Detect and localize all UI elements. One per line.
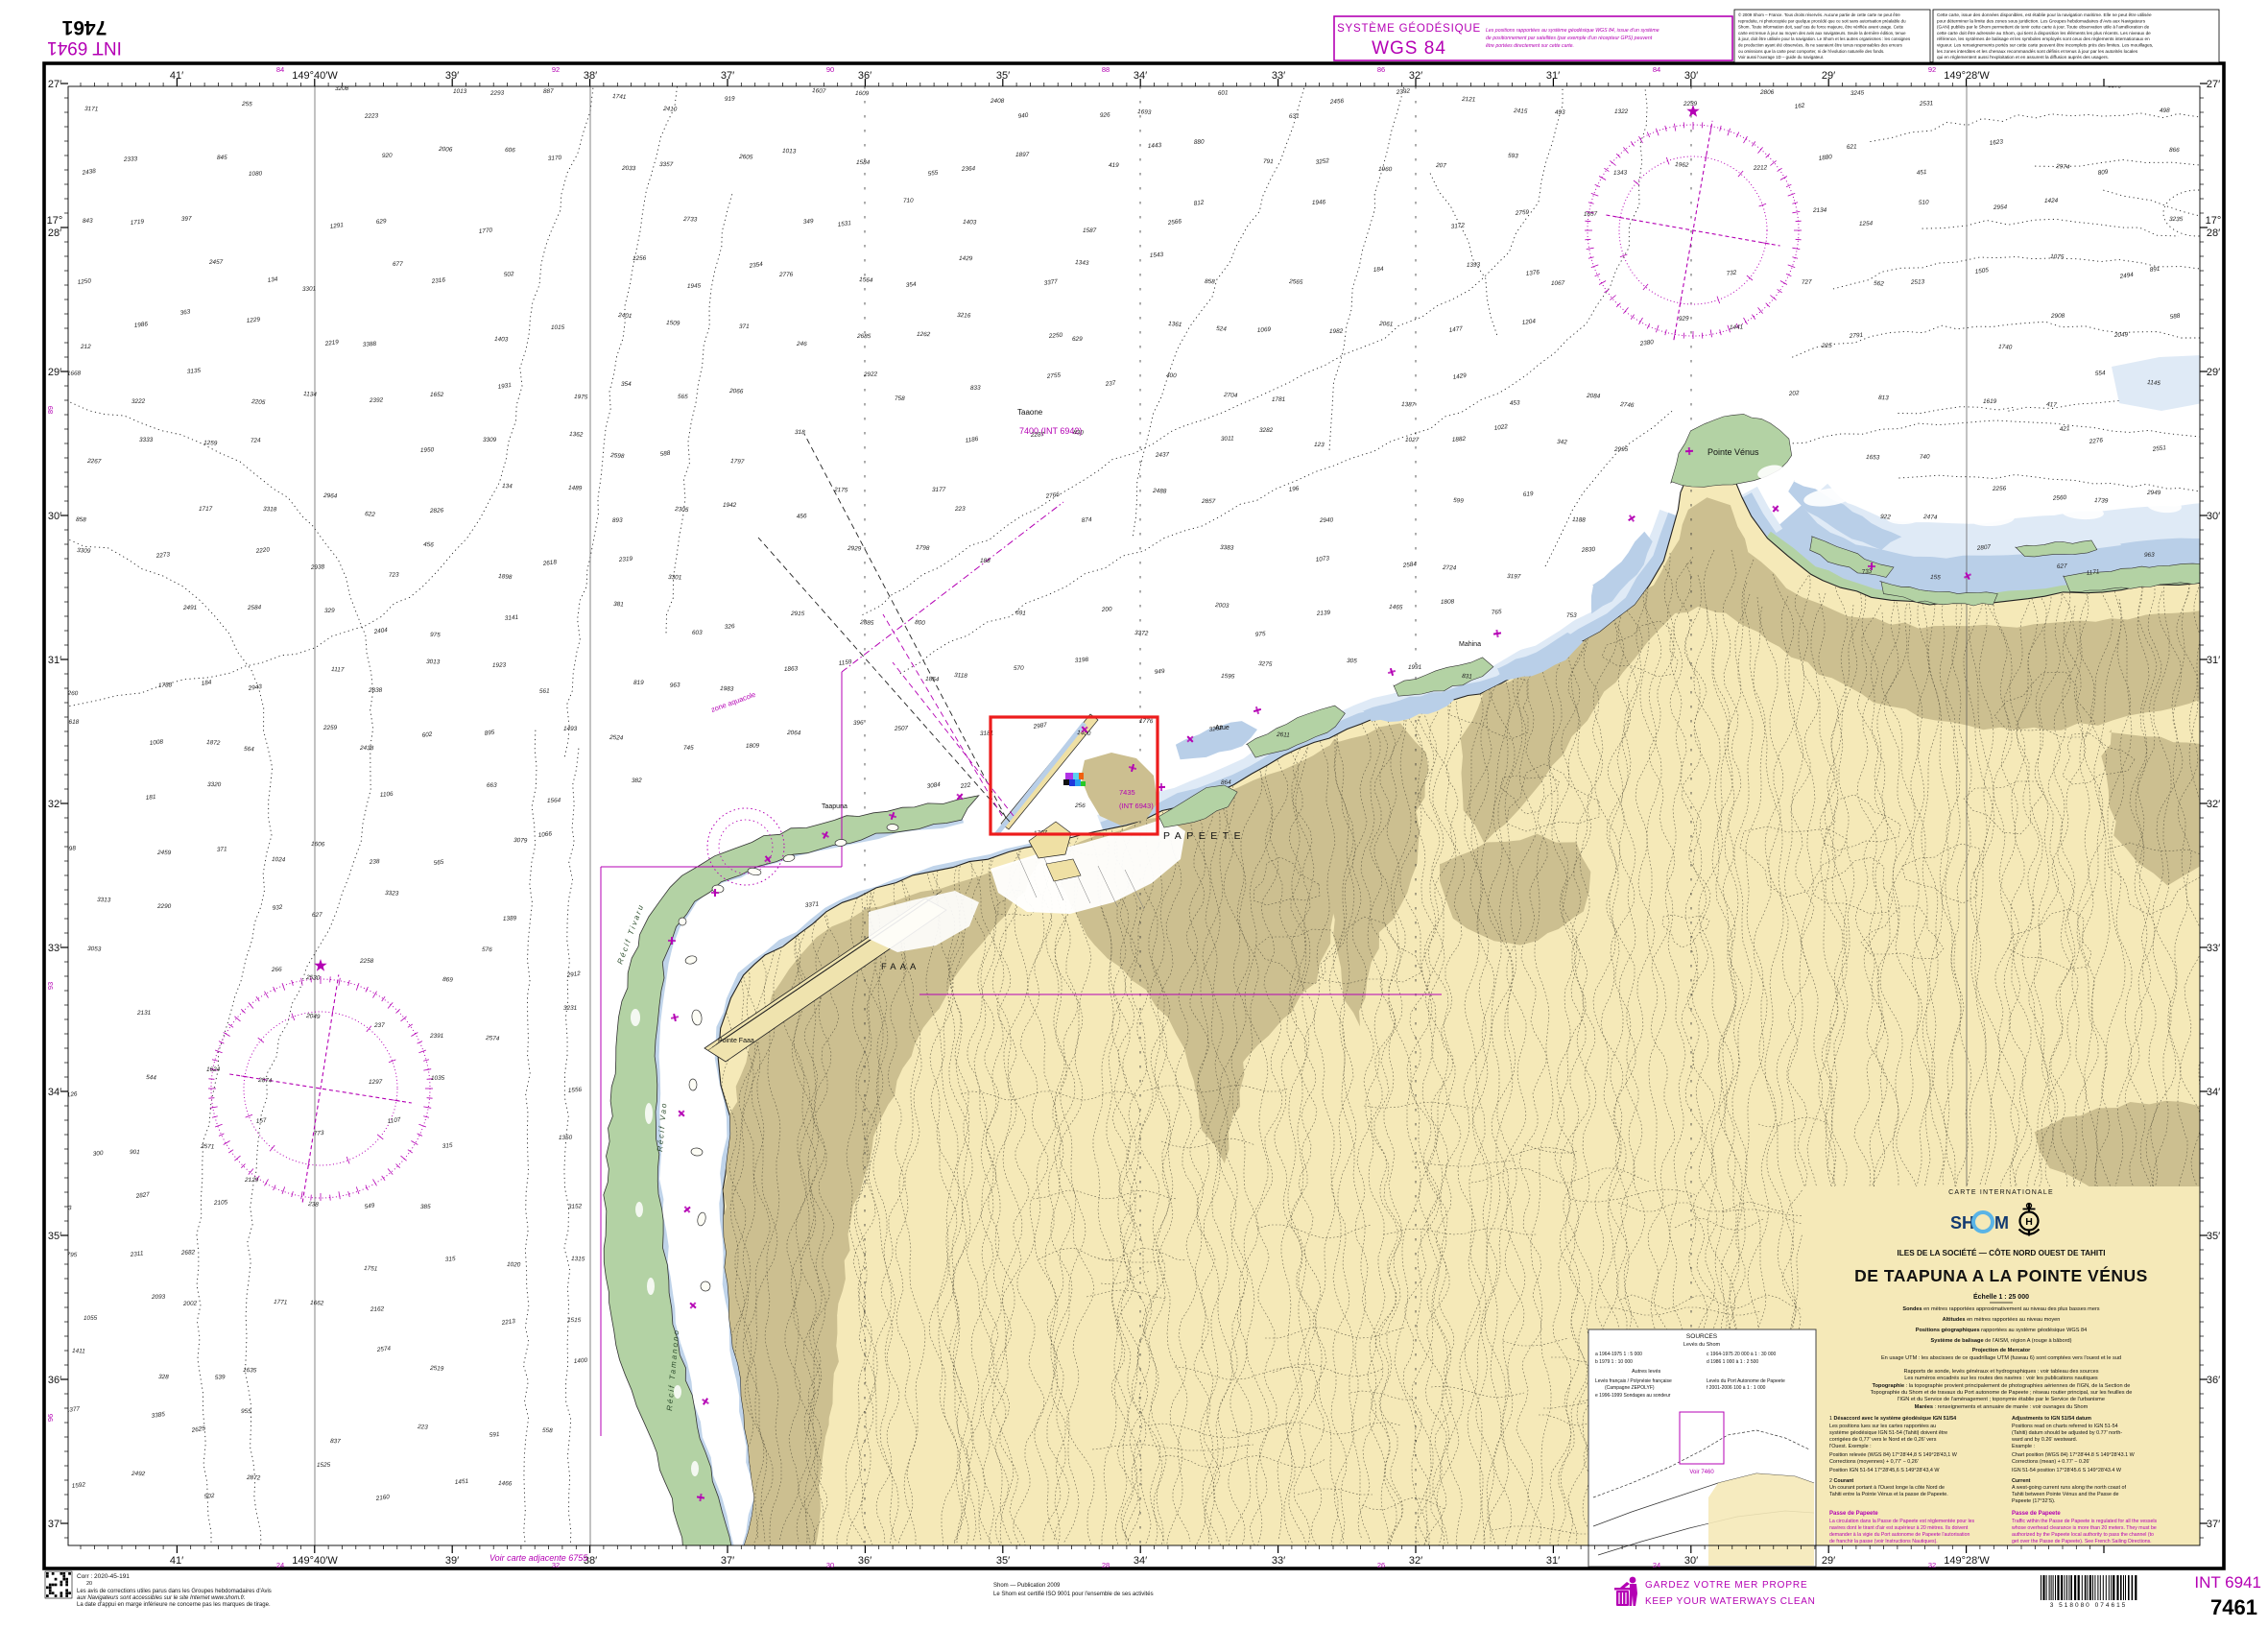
svg-text:32′: 32′ bbox=[48, 799, 61, 810]
svg-text:2006: 2006 bbox=[438, 146, 453, 154]
svg-text:1584: 1584 bbox=[856, 159, 871, 166]
svg-text:2915: 2915 bbox=[790, 610, 805, 617]
svg-text:de franchir la passe (voir Ins: de franchir la passe (voir Instructions … bbox=[1829, 1539, 1938, 1544]
svg-text:2474: 2474 bbox=[1922, 514, 1938, 521]
svg-text:562: 562 bbox=[1874, 280, 1884, 288]
svg-text:1983: 1983 bbox=[720, 685, 734, 693]
svg-text:1991: 1991 bbox=[1408, 664, 1422, 671]
svg-text:591: 591 bbox=[489, 1431, 500, 1439]
svg-text:Les avis de corrections utiles: Les avis de corrections utiles parus dan… bbox=[77, 1589, 272, 1594]
svg-text:7435: 7435 bbox=[1119, 788, 1135, 797]
svg-text:88: 88 bbox=[1102, 65, 1110, 74]
svg-text:2064: 2064 bbox=[786, 730, 801, 737]
svg-text:1297: 1297 bbox=[369, 1079, 383, 1086]
svg-text:400: 400 bbox=[1166, 372, 1177, 379]
svg-text:2746: 2746 bbox=[1619, 401, 1635, 409]
svg-text:2574: 2574 bbox=[485, 1035, 500, 1042]
svg-text:223: 223 bbox=[417, 1424, 429, 1431]
svg-text:2571: 2571 bbox=[200, 1143, 215, 1151]
svg-text:381: 381 bbox=[613, 601, 624, 609]
svg-text:1609: 1609 bbox=[855, 90, 870, 97]
svg-text:919: 919 bbox=[725, 95, 735, 103]
svg-text:149°40′W: 149°40′W bbox=[292, 1555, 338, 1567]
svg-text:134: 134 bbox=[502, 483, 513, 490]
svg-text:2061: 2061 bbox=[1378, 321, 1394, 328]
svg-text:1515: 1515 bbox=[567, 1317, 582, 1324]
svg-text:599: 599 bbox=[1453, 497, 1465, 505]
svg-text:1080: 1080 bbox=[249, 170, 263, 178]
svg-text:354: 354 bbox=[621, 381, 632, 388]
svg-text:2438: 2438 bbox=[359, 745, 374, 752]
svg-text:2491: 2491 bbox=[182, 605, 198, 611]
svg-text:Tahiti entre la Pointe Vénus e: Tahiti entre la Pointe Vénus et la passe… bbox=[1829, 1492, 1948, 1497]
svg-text:3320: 3320 bbox=[207, 781, 222, 788]
svg-text:2524: 2524 bbox=[609, 734, 624, 742]
svg-text:453: 453 bbox=[1510, 399, 1521, 407]
svg-text:329: 329 bbox=[324, 608, 335, 614]
svg-text:2806: 2806 bbox=[1759, 89, 1775, 96]
svg-text:En usage UTM : les abscisses d: En usage UTM : les abscisses de ce quadr… bbox=[1881, 1355, 2121, 1361]
svg-text:37′: 37′ bbox=[721, 1555, 734, 1567]
svg-text:ILES DE LA SOCIÉTÉ — CÔTE NORD: ILES DE LA SOCIÉTÉ — CÔTE NORD OUEST DE … bbox=[1898, 1247, 2106, 1257]
svg-text:Pointe Faaa: Pointe Faaa bbox=[718, 1038, 754, 1044]
svg-text:3388: 3388 bbox=[363, 341, 377, 348]
svg-text:561: 561 bbox=[539, 688, 550, 695]
svg-text:200: 200 bbox=[1101, 606, 1113, 613]
svg-text:1946: 1946 bbox=[1312, 199, 1326, 206]
svg-text:33′: 33′ bbox=[48, 943, 61, 954]
svg-text:238: 238 bbox=[307, 1201, 320, 1209]
svg-text:Levés français / Polynésie fra: Levés français / Polynésie française bbox=[1595, 1378, 1672, 1384]
svg-text:1751: 1751 bbox=[364, 1265, 378, 1273]
svg-text:3313: 3313 bbox=[97, 897, 111, 904]
svg-text:2139: 2139 bbox=[1316, 610, 1331, 617]
svg-text:2733: 2733 bbox=[682, 216, 698, 224]
svg-text:800: 800 bbox=[915, 619, 926, 627]
svg-text:Rapports de sonde, levés génér: Rapports de sonde, levés généraux et hyd… bbox=[1903, 1369, 2098, 1375]
svg-text:1717: 1717 bbox=[199, 506, 213, 513]
svg-text:© 2009 Shom – France. Tous dro: © 2009 Shom – France. Tous droits réserv… bbox=[1738, 12, 1900, 17]
svg-text:305: 305 bbox=[1347, 658, 1357, 665]
svg-text:aux Navigateurs sont accessibl: aux Navigateurs sont accessibles sur le … bbox=[77, 1595, 246, 1601]
svg-text:36′: 36′ bbox=[858, 1555, 871, 1567]
svg-text:593: 593 bbox=[1508, 153, 1518, 159]
svg-text:33′: 33′ bbox=[1272, 1555, 1285, 1567]
svg-text:2995: 2995 bbox=[1613, 446, 1629, 453]
svg-text:1343: 1343 bbox=[1075, 259, 1089, 267]
svg-text:Position relevée (WGS 84) 1: Position relevée (WGS 84) 17°28′44,8 S 1… bbox=[1829, 1452, 1958, 1458]
svg-text:31′: 31′ bbox=[1546, 70, 1560, 82]
svg-text:1015: 1015 bbox=[551, 324, 565, 331]
svg-text:2392: 2392 bbox=[369, 396, 384, 404]
svg-text:371: 371 bbox=[217, 846, 228, 853]
svg-text:866: 866 bbox=[2169, 147, 2180, 154]
svg-text:1489: 1489 bbox=[568, 485, 583, 492]
svg-text:30′: 30′ bbox=[1684, 70, 1698, 82]
svg-text:2531: 2531 bbox=[1919, 100, 1934, 108]
svg-text:Pointe Vénus: Pointe Vénus bbox=[1707, 447, 1759, 457]
svg-text:3198: 3198 bbox=[1075, 657, 1089, 664]
svg-text:922: 922 bbox=[1880, 514, 1891, 521]
svg-text:2267: 2267 bbox=[86, 458, 102, 466]
svg-text:237: 237 bbox=[373, 1022, 385, 1029]
svg-text:reproduite, ni photocopiée par: reproduite, ni photocopiée par quelque p… bbox=[1738, 18, 1906, 23]
svg-text:31′: 31′ bbox=[2207, 655, 2220, 666]
svg-text:565: 565 bbox=[678, 394, 688, 400]
svg-text:2093: 2093 bbox=[151, 1294, 166, 1301]
svg-text:3231: 3231 bbox=[563, 1005, 578, 1012]
svg-text:3053: 3053 bbox=[87, 946, 102, 953]
svg-text:24: 24 bbox=[1653, 1561, 1660, 1569]
svg-text:1635: 1635 bbox=[243, 1367, 257, 1375]
svg-text:1343: 1343 bbox=[1613, 169, 1628, 177]
svg-text:3309: 3309 bbox=[77, 547, 91, 555]
svg-text:819: 819 bbox=[633, 680, 644, 686]
svg-text:29′: 29′ bbox=[1822, 70, 1835, 82]
svg-text:2256: 2256 bbox=[1992, 485, 2007, 492]
svg-text:1624: 1624 bbox=[206, 1066, 221, 1073]
svg-text:1134: 1134 bbox=[303, 391, 318, 398]
svg-text:93: 93 bbox=[46, 982, 55, 990]
svg-text:Corrections (moyennes): Corrections (moyennes) + 0,77′ − 0,26′ bbox=[1829, 1459, 1919, 1465]
svg-text:1606: 1606 bbox=[311, 841, 325, 849]
svg-text:1035: 1035 bbox=[431, 1075, 445, 1082]
svg-text:3216: 3216 bbox=[957, 312, 971, 320]
svg-text:710: 710 bbox=[903, 198, 914, 204]
svg-text:1443: 1443 bbox=[1148, 142, 1162, 150]
svg-text:891: 891 bbox=[2149, 266, 2161, 274]
svg-text:603: 603 bbox=[692, 630, 703, 636]
svg-text:1465: 1465 bbox=[1389, 604, 1403, 611]
svg-text:809: 809 bbox=[2097, 169, 2109, 177]
svg-text:ou omissions que la carte peut: ou omissions que la carte peut comporter… bbox=[1738, 49, 1884, 54]
svg-text:27′: 27′ bbox=[2207, 79, 2220, 90]
svg-text:2121: 2121 bbox=[1461, 96, 1476, 104]
svg-text:2287: 2287 bbox=[1030, 431, 1045, 439]
svg-text:202: 202 bbox=[1788, 390, 1801, 397]
svg-text:1362: 1362 bbox=[569, 431, 584, 439]
svg-text:41′: 41′ bbox=[170, 70, 183, 82]
svg-text:1067: 1067 bbox=[1551, 280, 1565, 287]
svg-text:419: 419 bbox=[1109, 162, 1119, 169]
svg-text:89: 89 bbox=[46, 406, 55, 414]
svg-text:315: 315 bbox=[442, 1142, 453, 1150]
svg-text:858: 858 bbox=[76, 516, 86, 523]
svg-text:417: 417 bbox=[2046, 401, 2058, 409]
svg-text:887: 887 bbox=[543, 88, 554, 95]
svg-text:724: 724 bbox=[251, 437, 261, 444]
svg-text:3245: 3245 bbox=[1850, 89, 1865, 97]
svg-text:1668: 1668 bbox=[67, 370, 82, 377]
svg-text:36′: 36′ bbox=[2207, 1375, 2220, 1386]
svg-text:32′: 32′ bbox=[1409, 70, 1422, 82]
svg-text:2974: 2974 bbox=[2055, 163, 2070, 171]
svg-text:get over the Passe de Papeete): get over the Passe de Papeete). See Fren… bbox=[2012, 1539, 2152, 1544]
svg-text:2212: 2212 bbox=[1753, 164, 1768, 172]
svg-text:1950: 1950 bbox=[420, 446, 435, 454]
svg-text:Example :: Example : bbox=[2012, 1444, 2035, 1449]
svg-text:1564: 1564 bbox=[859, 276, 873, 284]
svg-text:149°40′W: 149°40′W bbox=[292, 70, 338, 82]
svg-text:342: 342 bbox=[1557, 439, 1567, 445]
svg-text:Positions read on charts refer: Positions read on charts referred to IGN… bbox=[2012, 1424, 2118, 1429]
svg-text:3235: 3235 bbox=[2169, 216, 2184, 223]
svg-text:940: 940 bbox=[1017, 112, 1029, 120]
svg-text:2759: 2759 bbox=[1515, 209, 1530, 217]
svg-text:Taapuna: Taapuna bbox=[822, 803, 848, 810]
svg-text:2922: 2922 bbox=[863, 371, 878, 378]
svg-text:1587: 1587 bbox=[1083, 227, 1097, 234]
svg-text:188: 188 bbox=[980, 558, 991, 564]
svg-text:37′: 37′ bbox=[2207, 1519, 2220, 1530]
svg-text:2364: 2364 bbox=[961, 165, 976, 173]
svg-text:831: 831 bbox=[1462, 673, 1473, 681]
svg-text:1982: 1982 bbox=[1329, 328, 1344, 335]
svg-text:1882: 1882 bbox=[1452, 436, 1467, 443]
svg-text:31′: 31′ bbox=[1546, 1555, 1560, 1567]
svg-text:Altitudes en mètres rapportées: Altitudes en mètres rapportées au niveau… bbox=[1943, 1317, 2061, 1323]
svg-text:1739: 1739 bbox=[2094, 497, 2109, 505]
svg-text:de positionnement par satellit: de positionnement par satellites (par ex… bbox=[1486, 36, 1653, 41]
svg-text:975: 975 bbox=[430, 632, 441, 638]
svg-text:456: 456 bbox=[797, 513, 808, 520]
svg-text:f 2001-2006 100 à 1 :: f 2001-2006 100 à 1 : 1 000 bbox=[1707, 1385, 1766, 1391]
svg-text:41′: 41′ bbox=[170, 1555, 183, 1567]
svg-text:A west-going current runs alon: A west-going current runs along the nort… bbox=[2012, 1485, 2126, 1491]
svg-text:1776: 1776 bbox=[1139, 718, 1154, 725]
svg-text:vigueur. Les renseignements po: vigueur. Les renseignements portés sur c… bbox=[1937, 43, 2153, 48]
svg-text:2519: 2519 bbox=[429, 1365, 444, 1373]
svg-text:29′: 29′ bbox=[2207, 367, 2220, 378]
svg-text:1403: 1403 bbox=[963, 219, 977, 227]
svg-text:2598: 2598 bbox=[609, 452, 625, 460]
svg-text:1020: 1020 bbox=[507, 1261, 521, 1269]
svg-text:1872: 1872 bbox=[206, 739, 221, 747]
svg-text:354: 354 bbox=[905, 281, 917, 289]
svg-text:Sondes en mètres rapportées ap: Sondes en mètres rapportées approximativ… bbox=[1902, 1306, 2099, 1312]
svg-text:149°28′W: 149°28′W bbox=[1944, 1555, 1990, 1567]
svg-text:2457: 2457 bbox=[208, 259, 224, 266]
svg-text:740: 740 bbox=[1920, 453, 1930, 461]
svg-text:2258: 2258 bbox=[359, 958, 374, 965]
svg-text:3170: 3170 bbox=[548, 155, 562, 162]
svg-text:Les positions lues sur les car: Les positions lues sur les cartes rappor… bbox=[1829, 1424, 1936, 1429]
svg-text:corrigées de 0,77′ vers le Nor: corrigées de 0,77′ vers le Nord et de 0,… bbox=[1829, 1437, 1937, 1443]
svg-text:3197: 3197 bbox=[1507, 573, 1521, 581]
svg-text:880: 880 bbox=[1194, 138, 1205, 146]
svg-text:IGN 51-54 position: IGN 51-54 position 17°28′45.6 S 149°28′4… bbox=[2012, 1468, 2122, 1473]
svg-text:929: 929 bbox=[1679, 315, 1689, 323]
svg-text:Corrections (mean): Corrections (mean) + 0.77′ − 0.26′ bbox=[2012, 1459, 2089, 1465]
svg-text:864: 864 bbox=[1221, 779, 1231, 786]
svg-text:315: 315 bbox=[445, 1256, 457, 1263]
svg-text:451: 451 bbox=[1916, 169, 1927, 177]
svg-text:INT 6941: INT 6941 bbox=[47, 37, 122, 58]
svg-text:1 Désaccord avec le système: 1 Désaccord avec le système géodésique I… bbox=[1829, 1416, 1956, 1422]
svg-text:396: 396 bbox=[853, 720, 864, 727]
svg-text:1657: 1657 bbox=[1584, 210, 1598, 218]
svg-text:27′: 27′ bbox=[48, 79, 61, 90]
svg-text:606: 606 bbox=[505, 147, 515, 154]
svg-text:Taaone: Taaone bbox=[1017, 408, 1043, 417]
svg-text:2954: 2954 bbox=[1993, 203, 2008, 211]
svg-text:149°28′W: 149°28′W bbox=[1944, 70, 1990, 82]
svg-text:318: 318 bbox=[795, 429, 805, 436]
svg-text:2319: 2319 bbox=[618, 556, 633, 563]
svg-text:1897: 1897 bbox=[1015, 152, 1030, 158]
svg-text:2002: 2002 bbox=[182, 1300, 198, 1307]
svg-text:1942: 1942 bbox=[723, 502, 737, 509]
svg-text:qui en réglementent aussi l'ex: qui en réglementent aussi l'exploitation… bbox=[1937, 55, 2109, 60]
svg-text:1055: 1055 bbox=[84, 1315, 98, 1322]
svg-text:2682: 2682 bbox=[180, 1249, 196, 1257]
svg-text:28: 28 bbox=[1102, 1561, 1110, 1569]
svg-text:3 518080 074615: 3 518080 074615 bbox=[2050, 1602, 2128, 1609]
svg-text:1543: 1543 bbox=[1150, 251, 1164, 259]
svg-text:Passe de Papeete: Passe de Papeete bbox=[1829, 1511, 1878, 1517]
svg-text:90: 90 bbox=[826, 65, 834, 74]
svg-text:627: 627 bbox=[2057, 563, 2067, 570]
svg-text:demander à la vigie du Port au: demander à la vigie du Port autonome de … bbox=[1829, 1532, 1970, 1538]
svg-text:1595: 1595 bbox=[1221, 673, 1235, 681]
svg-text:858: 858 bbox=[1205, 278, 1215, 285]
svg-text:1509: 1509 bbox=[666, 320, 680, 327]
svg-text:SOURCES: SOURCES bbox=[1686, 1333, 1718, 1340]
svg-text:29′: 29′ bbox=[48, 367, 61, 378]
svg-text:30′: 30′ bbox=[48, 511, 61, 522]
svg-text:1441: 1441 bbox=[1730, 323, 1744, 331]
svg-text:à jour, doit être utilisée pou: à jour, doit être utilisée pour la navig… bbox=[1738, 36, 1911, 41]
svg-text:1619: 1619 bbox=[1983, 398, 1997, 405]
svg-text:36′: 36′ bbox=[858, 70, 871, 82]
svg-text:328: 328 bbox=[158, 1374, 169, 1380]
svg-text:Projection de Mercator: Projection de Mercator bbox=[1972, 1348, 2031, 1353]
svg-text:28′: 28′ bbox=[2207, 227, 2220, 239]
svg-text:1525: 1525 bbox=[317, 1462, 331, 1469]
svg-text:Les positions rapportées au sy: Les positions rapportées au système géod… bbox=[1486, 28, 1659, 34]
svg-text:2908: 2908 bbox=[2050, 313, 2065, 320]
svg-text:949: 949 bbox=[1154, 668, 1165, 676]
svg-text:2 Courant: 2 Courant bbox=[1829, 1478, 1853, 1484]
svg-text:588: 588 bbox=[659, 450, 671, 458]
svg-text:1741: 1741 bbox=[612, 93, 627, 101]
svg-text:Levés du Shom: Levés du Shom bbox=[1683, 1342, 1721, 1348]
svg-text:authorized by the Papeete loca: authorized by the Papeete local authorit… bbox=[2012, 1532, 2154, 1538]
svg-text:225: 225 bbox=[1821, 343, 1832, 349]
svg-text:20: 20 bbox=[86, 1581, 92, 1587]
svg-text:1854: 1854 bbox=[925, 676, 940, 683]
svg-text:2929: 2929 bbox=[847, 545, 862, 553]
svg-text:621: 621 bbox=[1847, 143, 1857, 151]
svg-text:24: 24 bbox=[276, 1561, 284, 1569]
svg-text:3309: 3309 bbox=[483, 437, 497, 443]
svg-text:Shom. Toute information doit,: Shom. Toute information doit, sauf cas d… bbox=[1738, 25, 1904, 30]
svg-text:2131: 2131 bbox=[136, 1010, 152, 1017]
svg-text:2530: 2530 bbox=[305, 974, 321, 982]
svg-text:371: 371 bbox=[739, 323, 750, 330]
svg-text:184: 184 bbox=[1373, 266, 1384, 274]
svg-text:2205: 2205 bbox=[251, 398, 266, 406]
svg-text:30: 30 bbox=[826, 1561, 834, 1569]
svg-text:3152: 3152 bbox=[568, 1203, 583, 1210]
svg-text:1451: 1451 bbox=[455, 1478, 469, 1486]
svg-text:1466: 1466 bbox=[498, 1480, 513, 1488]
svg-text:pour déterminer la limite des: pour déterminer la limite des zones sous… bbox=[1937, 18, 2146, 23]
svg-text:2560: 2560 bbox=[2052, 494, 2067, 502]
svg-text:Position IGN 51-54: Position IGN 51-54 17°28′45,6 S 149°28′4… bbox=[1829, 1468, 1940, 1473]
svg-text:Le Shom est certifié ISO 9001: Le Shom est certifié ISO 9001 pour l'ens… bbox=[993, 1592, 1154, 1597]
svg-text:1809: 1809 bbox=[746, 742, 760, 750]
svg-text:26: 26 bbox=[1377, 1561, 1385, 1569]
svg-text:3079: 3079 bbox=[513, 837, 528, 845]
svg-text:349: 349 bbox=[803, 218, 815, 226]
svg-text:1389: 1389 bbox=[503, 915, 517, 922]
svg-text:2776: 2776 bbox=[778, 272, 794, 278]
svg-text:33′: 33′ bbox=[2207, 943, 2220, 954]
svg-text:1556: 1556 bbox=[568, 1087, 583, 1094]
svg-text:1863: 1863 bbox=[784, 665, 799, 673]
svg-text:3171: 3171 bbox=[84, 106, 99, 113]
svg-text:955: 955 bbox=[241, 1408, 251, 1415]
svg-text:3118: 3118 bbox=[954, 672, 968, 680]
svg-text:2408: 2408 bbox=[990, 98, 1005, 105]
svg-text:2940: 2940 bbox=[1319, 516, 1334, 524]
svg-text:2826: 2826 bbox=[429, 507, 444, 515]
svg-text:1315: 1315 bbox=[571, 1256, 585, 1263]
svg-text:3135: 3135 bbox=[187, 368, 202, 375]
svg-text:1069: 1069 bbox=[1257, 326, 1272, 334]
svg-text:2437: 2437 bbox=[1155, 451, 1170, 459]
svg-text:Système de balisage de l'AISM,: Système de balisage de l'AISM, région A … bbox=[1931, 1338, 2072, 1344]
svg-text:Passe de Papeete: Passe de Papeete bbox=[2012, 1511, 2061, 1517]
svg-text:157: 157 bbox=[255, 1117, 267, 1125]
svg-text:631: 631 bbox=[1289, 113, 1300, 120]
svg-text:e 1996-1999 Sondages au so: e 1996-1999 Sondages au sondeur bbox=[1595, 1393, 1671, 1399]
svg-text:3222: 3222 bbox=[131, 398, 146, 405]
svg-text:système géodésique IGN 51-54 (: système géodésique IGN 51-54 (Tahiti) do… bbox=[1829, 1430, 1947, 1436]
svg-text:34′: 34′ bbox=[1134, 70, 1147, 82]
svg-text:753: 753 bbox=[1566, 612, 1577, 619]
svg-text:745: 745 bbox=[683, 745, 694, 752]
svg-text:845: 845 bbox=[217, 155, 227, 161]
svg-text:ward and by 0.26′ westward.: ward and by 0.26′ westward. bbox=[2011, 1437, 2077, 1443]
svg-text:39′: 39′ bbox=[445, 70, 459, 82]
svg-text:1411: 1411 bbox=[72, 1348, 85, 1354]
svg-text:l'Ouest. Exemple :: l'Ouest. Exemple : bbox=[1829, 1444, 1872, 1449]
svg-text:326: 326 bbox=[725, 623, 736, 631]
svg-text:963: 963 bbox=[2144, 552, 2155, 559]
svg-text:86: 86 bbox=[1377, 65, 1385, 74]
svg-text:207: 207 bbox=[1435, 162, 1446, 170]
svg-text:34′: 34′ bbox=[2207, 1087, 2220, 1098]
svg-text:Chart position (WGS 84) 1: Chart position (WGS 84) 17°28′44.8 S 149… bbox=[2012, 1452, 2136, 1458]
svg-text:837: 837 bbox=[330, 1438, 341, 1445]
svg-text:246: 246 bbox=[796, 341, 807, 347]
svg-text:Voir 7460: Voir 7460 bbox=[1689, 1470, 1714, 1475]
svg-text:564: 564 bbox=[244, 746, 254, 753]
svg-text:1424: 1424 bbox=[2044, 198, 2059, 204]
svg-text:3372: 3372 bbox=[1134, 630, 1149, 637]
svg-text:2938: 2938 bbox=[310, 563, 325, 571]
svg-text:1652: 1652 bbox=[430, 392, 444, 398]
svg-text:830: 830 bbox=[1073, 429, 1085, 437]
svg-text:212: 212 bbox=[80, 344, 91, 350]
svg-text:2410: 2410 bbox=[662, 106, 678, 113]
svg-text:2084: 2084 bbox=[1586, 393, 1601, 400]
svg-text:KEEP YOUR WATERWAYS CLEAN: KEEP YOUR WATERWAYS CLEAN bbox=[1645, 1596, 1816, 1607]
svg-text:2049: 2049 bbox=[305, 1013, 321, 1020]
svg-text:H: H bbox=[2025, 1216, 2033, 1228]
